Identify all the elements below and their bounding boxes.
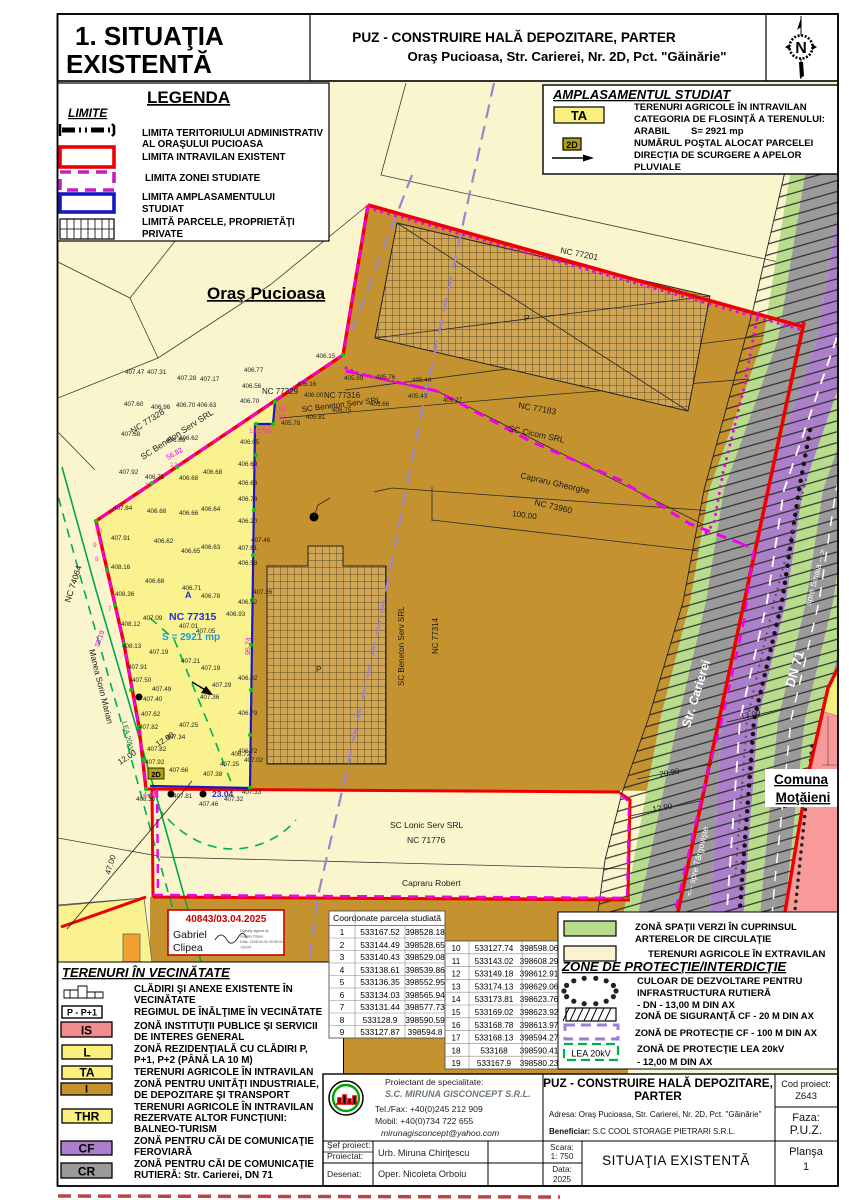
svg-text:Urb. Miruna Chiriţescu: Urb. Miruna Chiriţescu: [378, 1148, 469, 1158]
svg-text:533168: 533168: [480, 1046, 508, 1055]
svg-text:10: 10: [451, 944, 461, 953]
svg-text:406.00: 406.00: [304, 392, 324, 399]
svg-text:406.20: 406.20: [238, 518, 258, 525]
svg-text:398528.65: 398528.65: [405, 940, 445, 950]
svg-text:13: 13: [451, 982, 461, 991]
svg-text:DE INTERES GENERAL: DE INTERES GENERAL: [134, 1032, 244, 1043]
svg-text:407.02: 407.02: [244, 757, 264, 764]
svg-text:ZONĂ SPAŢII VERZI ÎN CUPRINSUL: ZONĂ SPAŢII VERZI ÎN CUPRINSUL: [635, 921, 797, 933]
svg-text:2: 2: [340, 940, 345, 950]
svg-text:407.33: 407.33: [242, 789, 262, 796]
svg-text:407.47: 407.47: [125, 369, 145, 376]
svg-text:398594.27: 398594.27: [520, 1034, 559, 1043]
svg-text:10: 10: [95, 528, 103, 535]
svg-text:ZONE DE PROTECŢIE/INTERDICŢIE: ZONE DE PROTECŢIE/INTERDICŢIE: [561, 959, 787, 974]
svg-text:ARABIL S= 2921 mp: ARABIL S= 2921 mp: [634, 126, 744, 137]
svg-text:406.78: 406.78: [201, 593, 221, 600]
svg-text:Clipea: Clipea: [173, 942, 203, 954]
svg-text:AL ORAŞULUI PUCIOASA: AL ORAŞULUI PUCIOASA: [142, 139, 263, 150]
svg-text:PUZ - CONSTRUIRE HALĂ DEPOZITA: PUZ - CONSTRUIRE HALĂ DEPOZITARE,: [543, 1076, 773, 1090]
svg-text:RUTIERĂ: Str. Carierei, DN 71: RUTIERĂ: Str. Carierei, DN 71: [134, 1170, 273, 1181]
svg-text:1: 1: [340, 927, 345, 937]
svg-text:406.74: 406.74: [238, 496, 258, 503]
svg-text:SC Beneton Serv SRL: SC Beneton Serv SRL: [397, 606, 406, 686]
svg-text:406.68: 406.68: [179, 475, 199, 482]
svg-text:4: 4: [340, 965, 345, 975]
svg-text:REZERVATE ALTOR FUNCŢIUNI:: REZERVATE ALTOR FUNCŢIUNI:: [134, 1113, 287, 1124]
svg-text:FEROVIARĂ: FEROVIARĂ: [134, 1147, 192, 1158]
svg-text:12: 12: [170, 462, 178, 469]
svg-text:Coordonate parcela studiată: Coordonate parcela studiată: [333, 913, 441, 923]
svg-text:406.05: 406.05: [240, 439, 260, 446]
svg-text:P.U.Z.: P.U.Z.: [790, 1123, 822, 1137]
svg-text:405.27: 405.27: [443, 397, 463, 404]
svg-text:PARTER: PARTER: [634, 1089, 682, 1103]
svg-text:533136.35: 533136.35: [360, 977, 400, 987]
svg-text:ZONĂ DE PROTECŢIE CF - 100 M D: ZONĂ DE PROTECŢIE CF - 100 M DIN AX: [635, 1027, 818, 1038]
svg-text:407.84: 407.84: [113, 505, 133, 512]
svg-text:- 12,00 M DIN AX: - 12,00 M DIN AX: [637, 1057, 713, 1068]
svg-text:18: 18: [451, 1046, 461, 1055]
svg-text:11: 11: [145, 482, 152, 489]
svg-text:533131.44: 533131.44: [360, 1002, 400, 1012]
svg-text:406.63: 406.63: [201, 544, 221, 551]
svg-text:407.62: 407.62: [141, 711, 161, 718]
svg-text:533167.9: 533167.9: [477, 1059, 512, 1068]
svg-text:TA: TA: [79, 1066, 94, 1080]
svg-text:406.56: 406.56: [242, 383, 262, 390]
svg-text:406.68: 406.68: [147, 508, 167, 515]
svg-text:407.29: 407.29: [212, 682, 232, 689]
svg-text:407.32: 407.32: [224, 796, 244, 803]
svg-text:P: P: [316, 665, 321, 674]
svg-text:9: 9: [93, 542, 97, 549]
svg-text:6: 6: [340, 990, 345, 1000]
svg-text:LIMITĂ PARCELE, PROPRIETĂŢI: LIMITĂ PARCELE, PROPRIETĂŢI: [142, 217, 295, 228]
svg-text:ZONĂ PENTRU CĂI DE COMUNICAŢIE: ZONĂ PENTRU CĂI DE COMUNICAŢIE: [134, 1136, 314, 1147]
svg-text:407.21: 407.21: [181, 658, 201, 665]
svg-text:CLĂDIRI ŞI ANEXE EXISTENTE ÎN: CLĂDIRI ŞI ANEXE EXISTENTE ÎN: [134, 983, 293, 995]
svg-text:398529.08: 398529.08: [405, 952, 445, 962]
svg-text:407.25: 407.25: [179, 722, 199, 729]
svg-text:406.64: 406.64: [201, 506, 221, 513]
svg-text:Mobil: +40(0)734 722 655: Mobil: +40(0)734 722 655: [375, 1116, 473, 1126]
svg-text:533134.03: 533134.03: [360, 990, 400, 1000]
svg-text:PRIVATE: PRIVATE: [142, 229, 183, 240]
svg-text:STUDIAT: STUDIAT: [142, 204, 184, 215]
svg-text:TERENURI ÎN VECINĂTATE: TERENURI ÎN VECINĂTATE: [62, 965, 230, 980]
svg-text:Digitally signed by: Digitally signed by: [240, 929, 269, 933]
svg-text:PUZ - CONSTRUIRE HALĂ DEPOZITA: PUZ - CONSTRUIRE HALĂ DEPOZITARE, PARTER: [352, 30, 676, 45]
svg-text:407.92: 407.92: [145, 759, 165, 766]
svg-text:533168.13: 533168.13: [475, 1034, 514, 1043]
svg-text:398552.95: 398552.95: [405, 977, 445, 987]
svg-text:406.93: 406.93: [226, 611, 246, 618]
svg-text:407.61: 407.61: [238, 545, 258, 552]
svg-text:406.52: 406.52: [238, 599, 258, 606]
svg-text:407.91: 407.91: [111, 535, 131, 542]
svg-text:Data:: Data:: [552, 1165, 572, 1174]
svg-text:Gabriel Clipea: Gabriel Clipea: [240, 935, 263, 939]
svg-text:533127.74: 533127.74: [475, 944, 514, 953]
svg-text:ARTERELOR DE CIRCULAŢIE: ARTERELOR DE CIRCULAŢIE: [635, 934, 772, 945]
svg-text:533173.81: 533173.81: [475, 995, 514, 1004]
svg-text:Tel./Fax: +40(0)245 212 909: Tel./Fax: +40(0)245 212 909: [375, 1104, 483, 1114]
svg-text:407.19: 407.19: [149, 649, 169, 656]
svg-text:Proiectat:: Proiectat:: [327, 1151, 363, 1161]
svg-text:NC 71776: NC 71776: [407, 835, 446, 845]
svg-text:406.68: 406.68: [203, 469, 223, 476]
svg-text:398590.59: 398590.59: [405, 1015, 445, 1025]
svg-text:407.19: 407.19: [201, 665, 221, 672]
svg-text:406.62: 406.62: [154, 538, 174, 545]
svg-text:Capraru Robert: Capraru Robert: [402, 878, 461, 888]
svg-text:ZONĂ PENTRU UNITĂŢI INDUSTRIAL: ZONĂ PENTRU UNITĂŢI INDUSTRIALE,: [134, 1079, 319, 1090]
svg-text:407.31: 407.31: [147, 369, 167, 376]
svg-text:Oper. Nicoleta Orboiu: Oper. Nicoleta Orboiu: [378, 1169, 466, 1179]
svg-text:407.40: 407.40: [143, 696, 163, 703]
svg-text:NC 77314: NC 77314: [431, 617, 440, 654]
svg-text:THR: THR: [75, 1110, 100, 1124]
svg-text:533127.87: 533127.87: [360, 1027, 400, 1037]
svg-text:398623.92: 398623.92: [520, 1008, 559, 1017]
svg-text:398577.73: 398577.73: [405, 1002, 445, 1012]
svg-text:8: 8: [340, 1015, 345, 1025]
svg-text:407.28: 407.28: [177, 375, 197, 382]
svg-text:19: 19: [451, 1059, 461, 1068]
svg-text:12: 12: [451, 970, 461, 979]
svg-text:Scara:: Scara:: [550, 1143, 574, 1152]
svg-text:7: 7: [340, 1002, 345, 1012]
svg-text:406.70: 406.70: [176, 402, 196, 409]
svg-text:mirunagisconcept@yahoo.com: mirunagisconcept@yahoo.com: [381, 1128, 499, 1138]
svg-text:N: N: [795, 40, 807, 57]
svg-text:Moţăieni: Moţăieni: [776, 790, 831, 805]
svg-text:NC 77329: NC 77329: [262, 387, 299, 396]
svg-text:I: I: [85, 1084, 88, 1096]
svg-text:95.74: 95.74: [245, 637, 253, 655]
svg-text:VECINĂTATE: VECINĂTATE: [134, 995, 196, 1006]
svg-text:398613.97: 398613.97: [520, 1021, 559, 1030]
svg-text:398565.94: 398565.94: [405, 990, 445, 1000]
svg-text:533128.9: 533128.9: [363, 1015, 398, 1025]
svg-text:407.60: 407.60: [124, 401, 144, 408]
svg-text:2D: 2D: [566, 140, 578, 150]
svg-text:REGIMUL DE ÎNĂLŢIME ÎN VECINĂT: REGIMUL DE ÎNĂLŢIME ÎN VECINĂTATE: [134, 1006, 323, 1018]
svg-text:406.65: 406.65: [181, 548, 201, 555]
svg-text:TERENURI AGRICOLE ÎN INTRAVILA: TERENURI AGRICOLE ÎN INTRAVILAN: [634, 101, 807, 113]
svg-text:EXISTENTĂ: EXISTENTĂ: [66, 49, 212, 79]
svg-text:407.82: 407.82: [139, 724, 159, 731]
svg-text:11: 11: [452, 957, 461, 966]
svg-text:398598.06: 398598.06: [520, 944, 559, 953]
svg-text:LIMITA INTRAVILAN EXISTENT: LIMITA INTRAVILAN EXISTENT: [142, 152, 286, 163]
svg-text:NC 77315: NC 77315: [169, 611, 216, 623]
svg-text:Z643: Z643: [795, 1091, 817, 1102]
svg-text:533138.61: 533138.61: [360, 965, 400, 975]
svg-text:1: 1: [803, 1161, 809, 1173]
svg-text:406.72: 406.72: [238, 748, 258, 755]
svg-text:NUMĂRUL POŞTAL ALOCAT PARCELEI: NUMĂRUL POŞTAL ALOCAT PARCELEI: [634, 138, 813, 149]
svg-text:408.16: 408.16: [111, 564, 131, 571]
svg-text:2D: 2D: [151, 770, 161, 779]
svg-text:ZONĂ INSTITUŢII PUBLICE ŞI SER: ZONĂ INSTITUŢII PUBLICE ŞI SERVICII: [134, 1021, 318, 1032]
svg-text:407.36: 407.36: [200, 694, 220, 701]
svg-text:Cod proiect:: Cod proiect:: [781, 1079, 831, 1089]
svg-text:Desenat:: Desenat:: [327, 1169, 361, 1179]
svg-text:405.44: 405.44: [412, 377, 432, 384]
svg-text:405.99: 405.99: [344, 375, 364, 382]
svg-text:398608.29: 398608.29: [520, 957, 559, 966]
svg-text:Beneficiar: S.C COOL STORAGE P: Beneficiar: S.C COOL STORAGE PIETRARI S.…: [549, 1127, 735, 1136]
svg-text:407.68: 407.68: [121, 431, 141, 438]
svg-text:LIMITA ZONEI STUDIATE: LIMITA ZONEI STUDIATE: [145, 173, 261, 184]
svg-text:15: 15: [278, 406, 286, 413]
svg-text:IS: IS: [81, 1024, 92, 1038]
svg-text:3: 3: [340, 952, 345, 962]
svg-text:398594.8: 398594.8: [408, 1027, 443, 1037]
svg-text:408.36: 408.36: [115, 591, 135, 598]
svg-text:CATEGORIA DE FLOSINŢĂ A TERENU: CATEGORIA DE FLOSINŢĂ A TERENULUI:: [634, 114, 825, 125]
svg-text:407.91: 407.91: [128, 664, 148, 671]
svg-text:14: 14: [451, 995, 461, 1004]
svg-text:406.71: 406.71: [182, 585, 202, 592]
svg-text:398528.18: 398528.18: [405, 927, 445, 937]
svg-text:BALNEO-TURISM: BALNEO-TURISM: [134, 1124, 217, 1135]
svg-text:TA: TA: [571, 108, 588, 123]
svg-text:533168.78: 533168.78: [475, 1021, 514, 1030]
svg-text:407.82: 407.82: [147, 746, 167, 753]
svg-text:398629.06: 398629.06: [520, 982, 559, 991]
svg-text:406.58: 406.58: [238, 560, 258, 567]
svg-text:Gabriel: Gabriel: [173, 929, 207, 941]
svg-text:407.92: 407.92: [119, 469, 139, 476]
svg-text:LIMITA AMPLASAMENTULUI: LIMITA AMPLASAMENTULUI: [142, 192, 275, 203]
svg-text:398590.41: 398590.41: [520, 1046, 559, 1055]
svg-text:Oraş Pucioasa, Str. Carierei,: Oraş Pucioasa, Str. Carierei, Nr. 2D, Pc…: [408, 49, 727, 64]
svg-text:LIMITA TERITORIULUI ADMINISTRA: LIMITA TERITORIULUI ADMINISTRATIV: [142, 128, 324, 139]
svg-text:TERENURI AGRICOLE ÎN INTRAVILA: TERENURI AGRICOLE ÎN INTRAVILAN: [134, 1101, 313, 1113]
svg-text:SITUAŢIA EXISTENTĂ: SITUAŢIA EXISTENTĂ: [602, 1153, 750, 1168]
svg-text:405.66: 405.66: [370, 401, 390, 408]
svg-text:533140.43: 533140.43: [360, 952, 400, 962]
svg-text:407.09: 407.09: [143, 615, 163, 622]
svg-text:407.25: 407.25: [220, 761, 240, 768]
svg-text:407.50: 407.50: [132, 677, 152, 684]
svg-text:398612.91: 398612.91: [520, 970, 559, 979]
svg-text:407.05: 407.05: [196, 628, 216, 635]
svg-text:Date: 2025.04.04 09:28:04: Date: 2025.04.04 09:28:04: [240, 940, 283, 944]
svg-text:406.16: 406.16: [297, 381, 317, 388]
svg-text:ZONĂ REZIDENŢIALĂ CU CLĂDIRI P: ZONĂ REZIDENŢIALĂ CU CLĂDIRI P,: [134, 1044, 308, 1055]
svg-text:406.70: 406.70: [240, 398, 260, 405]
svg-text:407.17: 407.17: [200, 376, 220, 383]
svg-text:LEA 20kV: LEA 20kV: [571, 1049, 611, 1059]
svg-text:533149.18: 533149.18: [475, 970, 514, 979]
svg-text:407.46: 407.46: [251, 537, 271, 544]
svg-text:533143.02: 533143.02: [475, 957, 514, 966]
svg-text:CULOAR DE DEZVOLTARE PENTRU: CULOAR DE DEZVOLTARE PENTRU: [637, 976, 802, 987]
svg-text:2025: 2025: [553, 1175, 572, 1184]
svg-text:405.43: 405.43: [408, 393, 428, 400]
svg-text:406.68: 406.68: [238, 480, 258, 487]
svg-text:Proiectant de specialitate:: Proiectant de specialitate:: [385, 1077, 483, 1087]
svg-text:405.81: 405.81: [306, 414, 326, 421]
svg-text:533174.13: 533174.13: [475, 982, 514, 991]
svg-text:406.75: 406.75: [145, 474, 165, 481]
svg-text:407.81: 407.81: [173, 793, 193, 800]
svg-text:406.63: 406.63: [197, 402, 217, 409]
svg-text:AMPLASAMENTUL STUDIAT: AMPLASAMENTUL STUDIAT: [552, 87, 731, 102]
svg-text:PLUVIALE: PLUVIALE: [634, 162, 681, 173]
svg-text:406.75: 406.75: [332, 407, 352, 414]
svg-text:P: P: [524, 314, 529, 323]
svg-text:ZONĂ DE SIGURANŢĂ CF - 20 M DI: ZONĂ DE SIGURANŢĂ CF - 20 M DIN AX: [635, 1010, 815, 1021]
svg-text:406.62: 406.62: [179, 435, 199, 442]
svg-text:L: L: [83, 1046, 90, 1060]
svg-text:TERENURI AGRICOLE ÎN INTRAVILA: TERENURI AGRICOLE ÎN INTRAVILAN: [134, 1066, 313, 1078]
svg-text:CF: CF: [79, 1142, 95, 1156]
svg-text:5: 5: [340, 977, 345, 987]
svg-text:533169.02: 533169.02: [475, 1008, 514, 1017]
svg-text:406.82: 406.82: [238, 675, 258, 682]
svg-text:DIRECŢIA DE SCURGERE A APELOR: DIRECŢIA DE SCURGERE A APELOR: [634, 150, 802, 161]
svg-text:533144.49: 533144.49: [360, 940, 400, 950]
svg-text:405.76: 405.76: [376, 374, 396, 381]
svg-text:407.38: 407.38: [203, 771, 223, 778]
svg-text:Şef proiect:: Şef proiect:: [327, 1140, 370, 1150]
svg-text:ZONĂ DE PROTECŢIE LEA 20kV: ZONĂ DE PROTECŢIE LEA 20kV: [637, 1044, 785, 1055]
svg-text:Adresa: Oraş Pucioasa, Str. Ca: Adresa: Oraş Pucioasa, Str. Carierei, Nr…: [549, 1110, 762, 1119]
svg-text:408.30: 408.30: [136, 796, 156, 803]
svg-text:398580.23: 398580.23: [520, 1059, 559, 1068]
svg-text:13: 13: [249, 428, 257, 435]
svg-text:DE DEPOZITARE ŞI TRANSPORT: DE DEPOZITARE ŞI TRANSPORT: [134, 1090, 290, 1101]
svg-text:SC Lonic Serv SRL: SC Lonic Serv SRL: [390, 820, 463, 830]
svg-text:407.46: 407.46: [199, 801, 219, 808]
svg-text:S.C. MIRUNA GISCONCEPT S.R.L.: S.C. MIRUNA GISCONCEPT S.R.L.: [385, 1089, 531, 1099]
svg-text:Comuna: Comuna: [774, 772, 828, 787]
svg-text:407.34: 407.34: [166, 734, 186, 741]
svg-text:398539.86: 398539.86: [405, 965, 445, 975]
svg-text:533167.52: 533167.52: [360, 927, 400, 937]
svg-text:406.15: 406.15: [316, 353, 336, 360]
svg-text:406.77: 406.77: [244, 367, 264, 374]
svg-text:407.49: 407.49: [152, 686, 172, 693]
svg-text:15: 15: [451, 1008, 461, 1017]
svg-text:406.68: 406.68: [145, 578, 165, 585]
svg-text:CR: CR: [78, 1165, 96, 1179]
svg-text:407.66: 407.66: [169, 767, 189, 774]
svg-text:INFRASTRUCTURA RUTIERĂ: INFRASTRUCTURA RUTIERĂ: [637, 988, 771, 999]
svg-text:16: 16: [451, 1021, 461, 1030]
svg-text:LIMITE: LIMITE: [68, 106, 108, 120]
svg-text:1780: 1780: [257, 428, 272, 435]
svg-text:40843/03.04.2025: 40843/03.04.2025: [186, 914, 267, 925]
svg-text:LEGENDA: LEGENDA: [147, 88, 230, 107]
svg-text:7: 7: [108, 606, 112, 613]
svg-text:407.26: 407.26: [253, 589, 273, 596]
svg-text:408.13: 408.13: [122, 643, 142, 650]
svg-text:405.78: 405.78: [281, 420, 301, 427]
svg-text:Oraş Pucioasa: Oraş Pucioasa: [207, 284, 326, 303]
svg-text:406.79: 406.79: [238, 710, 258, 717]
svg-text:406.69: 406.69: [238, 461, 258, 468]
svg-text:408.12: 408.12: [121, 621, 141, 628]
svg-text:Planşa: Planşa: [789, 1146, 824, 1158]
svg-text:8: 8: [95, 556, 99, 563]
svg-text:406.96: 406.96: [151, 404, 171, 411]
svg-text:ZONĂ PENTRU CĂI DE COMUNICAŢIE: ZONĂ PENTRU CĂI DE COMUNICAŢIE: [134, 1159, 314, 1170]
svg-text:1: 750: 1: 750: [551, 1152, 574, 1161]
svg-text:P+1, P+2 (PÂNĂ LA 10 M): P+1, P+2 (PÂNĂ LA 10 M): [134, 1054, 253, 1066]
svg-text:9: 9: [340, 1027, 345, 1037]
svg-text:17: 17: [451, 1034, 461, 1043]
svg-text:+03'00': +03'00': [240, 946, 252, 950]
svg-text:398623.76: 398623.76: [520, 995, 559, 1004]
svg-text:1. SITUAŢIA: 1. SITUAŢIA: [75, 21, 224, 51]
svg-text:406.66: 406.66: [179, 510, 199, 517]
svg-text:P - P+1: P - P+1: [67, 1008, 97, 1018]
